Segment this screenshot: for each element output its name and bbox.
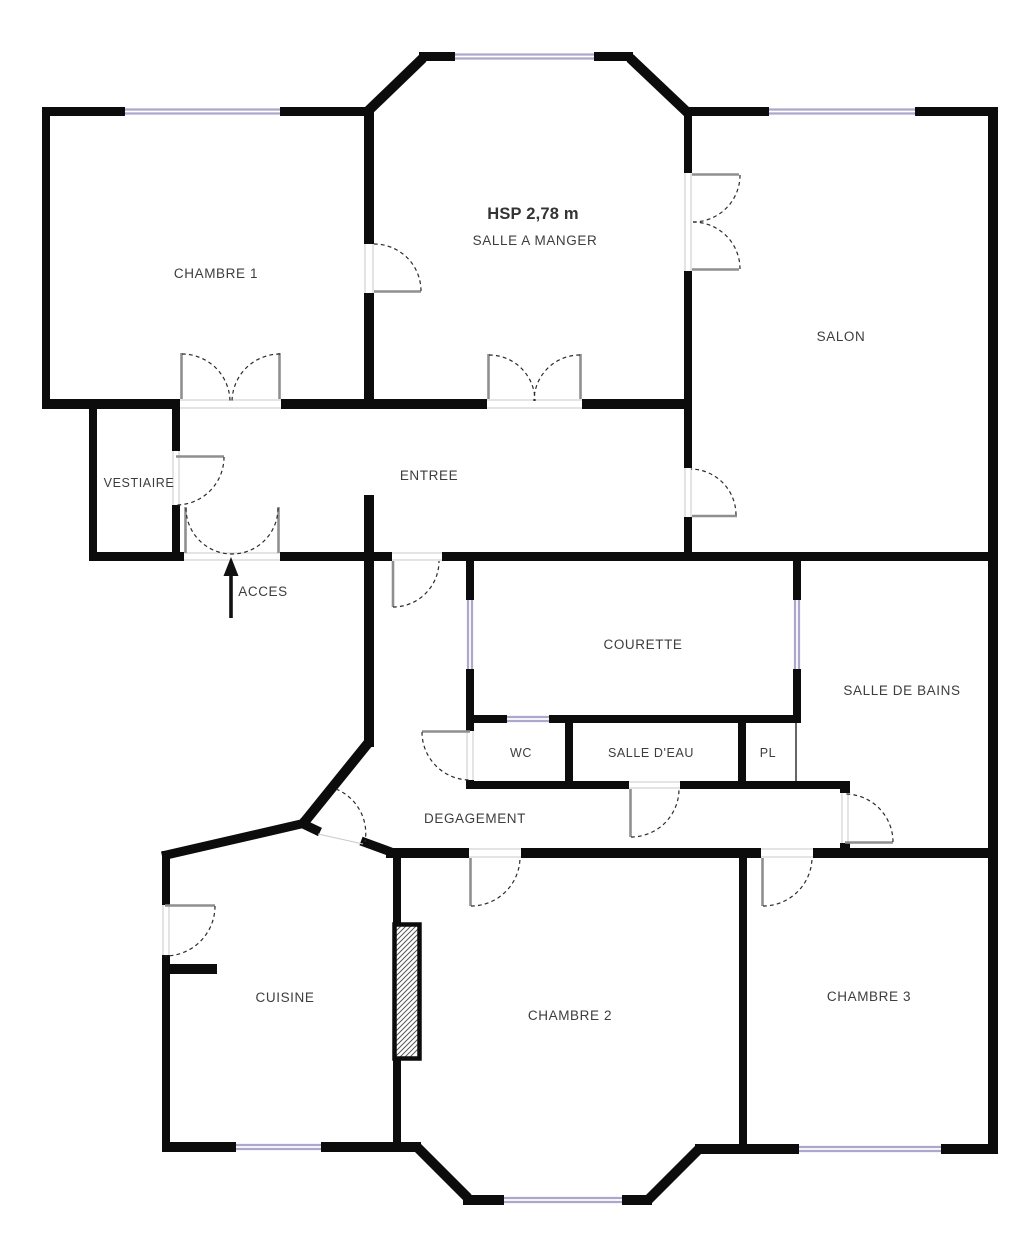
svg-text:SALLE DE BAINS: SALLE DE BAINS: [843, 683, 960, 698]
svg-text:ACCES: ACCES: [238, 584, 288, 599]
svg-text:WC: WC: [510, 746, 532, 760]
svg-text:CHAMBRE 2: CHAMBRE 2: [528, 1008, 612, 1023]
svg-text:CHAMBRE 1: CHAMBRE 1: [174, 266, 258, 281]
svg-text:HSP 2,78 m: HSP 2,78 m: [487, 205, 579, 223]
svg-text:CHAMBRE 3: CHAMBRE 3: [827, 989, 911, 1004]
svg-text:PL: PL: [760, 746, 777, 760]
svg-text:VESTIAIRE: VESTIAIRE: [104, 476, 175, 490]
svg-text:COURETTE: COURETTE: [603, 637, 682, 652]
svg-text:DEGAGEMENT: DEGAGEMENT: [424, 811, 526, 826]
svg-text:CUISINE: CUISINE: [256, 990, 315, 1005]
svg-text:SALLE D'EAU: SALLE D'EAU: [608, 746, 694, 760]
svg-text:SALLE A MANGER: SALLE A MANGER: [473, 233, 598, 248]
svg-text:ENTREE: ENTREE: [400, 468, 458, 483]
svg-text:SALON: SALON: [817, 329, 866, 344]
